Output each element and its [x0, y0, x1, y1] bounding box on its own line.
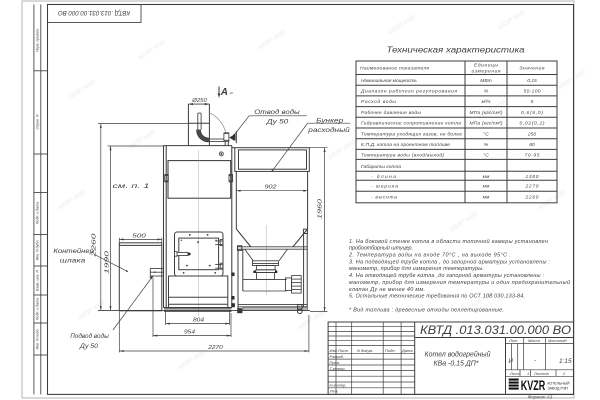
svg-text:954: 954 [184, 330, 195, 336]
svg-text:Т.контр.: Т.контр. [330, 366, 346, 371]
svg-text:Ду 50: Ду 50 [265, 119, 288, 126]
svg-text:Температура воды (вход/выход): Температура воды (вход/выход) [361, 152, 444, 158]
svg-text:расходный: расходный [307, 126, 350, 134]
svg-text:%: % [484, 142, 489, 148]
svg-text:Температура уходящих газов, не: Температура уходящих газов, не более [361, 131, 462, 137]
svg-text:Листов: Листов [533, 371, 549, 376]
svg-text:Формат А3: Формат А3 [528, 395, 553, 400]
svg-text:0,02(0,2): 0,02(0,2) [520, 121, 545, 127]
svg-text:5: 5 [531, 99, 534, 105]
svg-text:Подвод воды: Подвод воды [70, 332, 109, 340]
svg-text:измерения: измерения [472, 70, 501, 75]
svg-text:Пров.: Пров. [330, 360, 341, 365]
svg-text:2. Температура воды на входе: 2. Температура воды на входе 70°С , на в… [348, 252, 511, 258]
svg-text:80: 80 [529, 142, 535, 148]
svg-text:Справ. N: Справ. N [36, 114, 40, 129]
svg-text:Утв.: Утв. [330, 389, 339, 394]
svg-text:Гидравлическое сопротивление к: Гидравлическое сопротивление котла [361, 121, 461, 127]
svg-text:Единицы: Единицы [474, 63, 498, 69]
svg-text:°С: °С [483, 131, 489, 137]
svg-text:Ø250: Ø250 [191, 98, 207, 104]
svg-text:КВа -0,15 ДП*: КВа -0,15 ДП* [434, 361, 479, 368]
svg-text:КОТЕЛЬНЫЙ: КОТЕЛЬНЫЙ [548, 381, 570, 385]
svg-text:KVZR: KVZR [521, 378, 546, 393]
svg-text:1:15: 1:15 [559, 358, 572, 365]
svg-text:шлака: шлака [60, 258, 86, 265]
svg-text:N докум.: N докум. [357, 348, 373, 353]
svg-text:Наименование показателя: Наименование показателя [360, 66, 429, 72]
svg-text:КВТД .013.031.00.000 ВО: КВТД .013.031.00.000 ВО [58, 9, 130, 16]
svg-text:3. На подводящей трубе котла: 3. На подводящей трубе котла , до запорн… [349, 258, 550, 265]
svg-text:2260: 2260 [525, 195, 539, 201]
svg-text:%: % [484, 89, 489, 95]
svg-text:Инв. N подл.: Инв. N подл. [36, 328, 40, 349]
svg-text:2270: 2270 [525, 184, 539, 190]
svg-text:2270: 2270 [207, 345, 223, 351]
svg-text:- длина: - длина [371, 174, 396, 180]
svg-text:1: 1 [527, 371, 529, 376]
svg-text:клапан Ду не менее 40 мм.: клапан Ду не менее 40 мм. [349, 287, 425, 293]
svg-text:°С: °С [483, 152, 489, 158]
svg-text:МПа (кгс/см²): МПа (кгс/см²) [470, 110, 503, 116]
svg-text:МПа (кгс/см²): МПа (кгс/см²) [470, 121, 503, 127]
svg-text:И: И [509, 359, 514, 365]
svg-text:250: 250 [527, 131, 536, 137]
svg-text:0,15: 0,15 [527, 78, 537, 84]
svg-text:Дата: Дата [401, 348, 413, 353]
svg-text:902: 902 [265, 185, 277, 191]
svg-text:1. На боковой стенке котла в: 1. На боковой стенке котла в области топ… [349, 238, 548, 245]
svg-text:Разраб.: Разраб. [330, 354, 344, 359]
svg-text:А: А [220, 87, 228, 98]
svg-text:мм: мм [483, 185, 490, 190]
svg-text:Расход воды: Расход воды [361, 99, 396, 105]
svg-text:Перв. примен.: Перв. примен. [36, 28, 40, 52]
svg-text:Котел водогрейный: Котел водогрейный [425, 351, 491, 359]
svg-text:Ду 50: Ду 50 [79, 343, 98, 350]
svg-text:Н.контр.: Н.контр. [330, 383, 347, 388]
svg-text:Техническая характеристика: Техническая характеристика [387, 45, 526, 54]
svg-text:Габариты котла: Габариты котла [361, 164, 401, 170]
svg-text:Значения: Значения [520, 66, 545, 72]
svg-text:см. п. 1: см. п. 1 [113, 183, 151, 190]
svg-text:0,6(6,0): 0,6(6,0) [521, 110, 543, 116]
svg-text:Подп. и дата: Подп. и дата [36, 298, 40, 321]
svg-text:- высота: - высота [371, 196, 397, 201]
svg-text:мм: мм [483, 196, 490, 201]
svg-text:1960: 1960 [318, 199, 324, 219]
svg-text:МВт: МВт [480, 78, 491, 84]
svg-text:мм: мм [483, 175, 490, 180]
svg-text:манометр, прибор для измерения: манометр, прибор для измерения температу… [349, 266, 484, 272]
svg-text:Изм.Лист: Изм.Лист [330, 348, 349, 353]
svg-text:Взам. инв. N: Взам. инв. N [36, 270, 40, 291]
svg-text:ЗАВОД РЭП: ЗАВОД РЭП [548, 387, 569, 391]
svg-text:Диапазон рабочего регулировани: Диапазон рабочего регулирования [360, 89, 457, 95]
svg-text:К.П.Д. котла на проектном топл: К.П.Д. котла на проектном топливе [361, 142, 450, 148]
svg-text:Подп.: Подп. [385, 348, 396, 353]
svg-text:м³/ч: м³/ч [482, 99, 491, 105]
svg-text:Инв. N дубл.: Инв. N дубл. [36, 240, 40, 261]
svg-text:Рабочее давление воды: Рабочее давление воды [361, 110, 421, 116]
svg-text:Лит.: Лит. [508, 338, 518, 343]
svg-text:4. На отводящей трубе котла ,: 4. На отводящей трубе котла ,до запорной… [349, 272, 544, 279]
svg-text:КВТД .013.031.00.000 ВО: КВТД .013.031.00.000 ВО [420, 325, 571, 337]
svg-text:-: - [534, 358, 536, 364]
svg-text:Лист: Лист [509, 371, 521, 376]
svg-text:804: 804 [193, 318, 204, 324]
svg-text:Масса: Масса [528, 338, 541, 343]
svg-text:* Вид топлива : древесные от: * Вид топлива : древесные отходы пеллети… [349, 308, 504, 314]
svg-text:- ширина: - ширина [371, 185, 398, 190]
svg-text:500: 500 [132, 234, 146, 240]
svg-text:1380: 1380 [526, 174, 539, 180]
svg-text:ш: ш [230, 91, 233, 95]
svg-text:пробоотборный штуцер.: пробоотборный штуцер. [349, 245, 413, 252]
svg-text:Отвод воды: Отвод воды [254, 108, 300, 116]
svg-text:Контейнер: Контейнер [53, 247, 94, 255]
svg-text:Подп. и дата: Подп. и дата [36, 202, 40, 225]
svg-text:Номинальная мощность: Номинальная мощность [361, 78, 417, 84]
svg-text:5. Остальные технические треб: 5. Остальные технические требования по О… [349, 294, 525, 300]
svg-text:50-100: 50-100 [524, 89, 541, 95]
svg-text:Масштаб: Масштаб [548, 338, 567, 343]
svg-text:манометр, прибор для измерения: манометр, прибор для измерения температу… [349, 279, 570, 286]
svg-text:70-95: 70-95 [525, 152, 540, 158]
